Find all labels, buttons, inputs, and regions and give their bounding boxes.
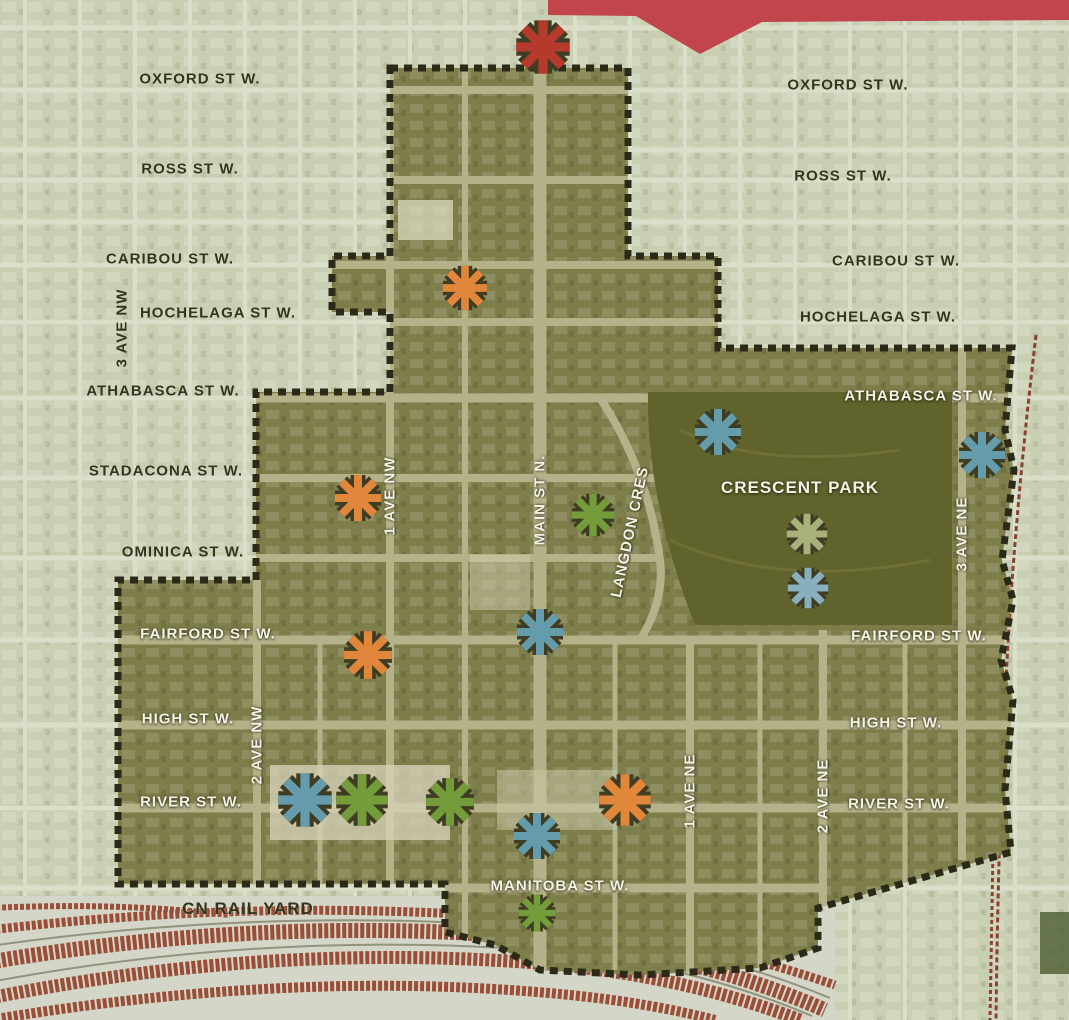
asterisk-marker-green-12 [336, 774, 388, 826]
asterisk-marker-orange-3 [344, 631, 392, 679]
asterisk-marker-green-13 [426, 778, 474, 826]
asterisk-marker-teal-6 [959, 432, 1005, 478]
aerial-map: OXFORD ST W.OXFORD ST W.ROSS ST W.ROSS S… [0, 0, 1069, 1020]
asterisk-marker-orange-2 [335, 475, 381, 521]
asterisk-marker-orange-4 [599, 774, 651, 826]
asterisk-marker-orange-1 [443, 266, 487, 310]
asterisk-marker-teal-14 [514, 813, 560, 859]
asterisk-marker-green-15 [519, 895, 556, 932]
asterisk-marker-teal-11 [278, 773, 331, 826]
asterisk-marker-lightblue-9 [788, 568, 828, 608]
asterisk-marker-teal-5 [695, 409, 741, 455]
asterisk-marker-sage-8 [787, 514, 827, 554]
asterisk-marker-teal-10 [517, 609, 563, 655]
asterisk-marker-red-0 [516, 20, 569, 73]
asterisk-marker-green-7 [572, 494, 614, 536]
map-canvas [0, 0, 1069, 1020]
